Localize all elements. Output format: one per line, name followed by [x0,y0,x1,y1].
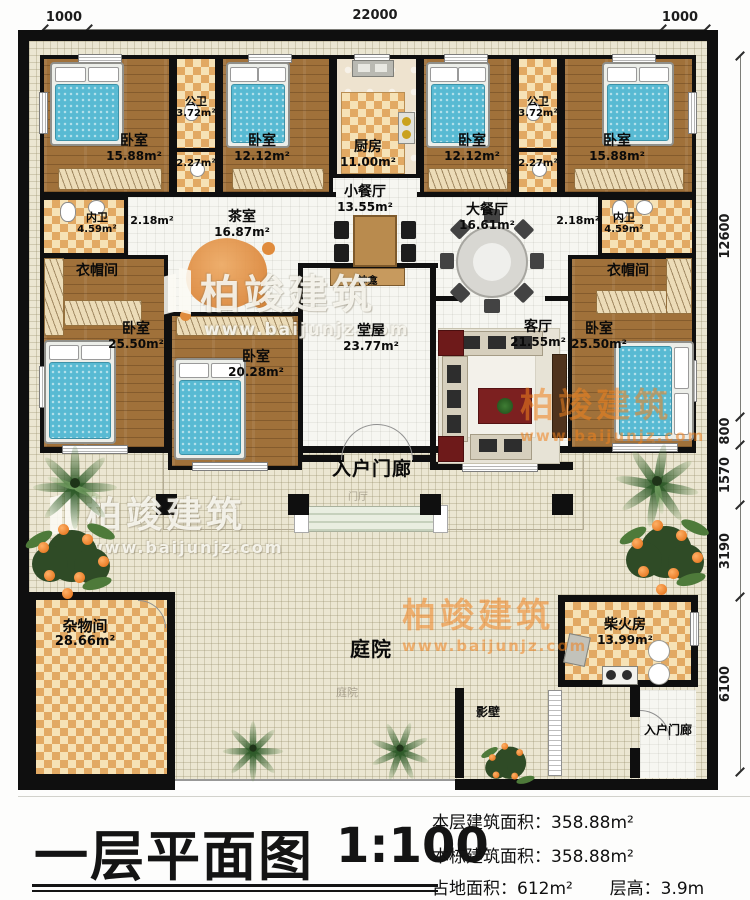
tv-cabinet [552,354,567,438]
chair [440,253,454,269]
table-top [456,226,528,298]
room-label-dining-large: 大餐厅16.61m² [427,203,547,232]
room-label-cloak-right: 衣帽间 [578,264,678,280]
chair [334,244,349,262]
room-label-bath-top-left: 公卫3.72m² [166,96,226,120]
room-label-storage: 杂物间28.66m² [25,618,145,649]
porch-edge [583,453,584,530]
wall-segment [630,687,640,717]
drawing-title: 一层平面图 [34,812,314,891]
porch-column [552,494,573,515]
fruit-tree [480,735,540,792]
wall-segment [40,192,336,197]
tea-room-rug-dot [180,310,191,321]
porch-edge [163,453,164,530]
tea-room-rug-dot [262,242,275,255]
window-icon [462,463,538,472]
chair [401,221,416,239]
side-steps [548,690,562,776]
stat-land-and-height: 占地面积：612m² 层高：3.9m [432,874,704,899]
room-label-hall-left: 2.18m² [122,215,182,227]
chair [530,253,544,269]
porch-column [420,494,441,515]
wall-segment [545,296,571,301]
room-label-wc-right: 内卫4.59m² [584,212,664,236]
dining-table-small [353,215,397,267]
chair [334,221,349,239]
fruit-tree [24,512,120,604]
porch-column [156,494,177,515]
room-label-main-hall: 堂屋23.77m² [311,324,431,353]
title-underline [32,884,438,887]
pot [648,663,670,685]
dim-right-6100: 6100 [719,654,733,714]
window-icon [690,612,699,646]
room-label-dining-small: 小餐厅13.55m² [305,185,425,214]
bed [614,341,694,441]
room-label-bedroom-mid: 卧室20.28m² [196,350,316,379]
dim-right-3190: 3190 [719,521,733,581]
porch-column [288,494,309,515]
screen-wall [455,688,464,778]
dim-top-left: 1000 [38,10,90,25]
firewood-stove [602,666,638,685]
dining-table-round [456,226,528,298]
porch-ghost-text: 门厅 [348,488,368,503]
room-label-bedroom-left3: 卧室25.50m² [76,322,196,351]
palm-tree [221,719,286,784]
dim-right-12600: 12600 [719,206,733,266]
kitchen-sink [352,60,394,77]
room-label-tea-room: 茶室16.87m² [182,210,302,239]
shrine-label: 神龛 [358,276,378,287]
room-label-bedroom-right3: 卧室25.50m² [539,322,659,351]
coffee-table [478,388,532,424]
wardrobe [58,168,162,190]
room-label-cloak-left: 衣帽间 [47,264,147,280]
wall-segment [630,748,640,778]
wardrobe [428,168,508,190]
stat-building-area: 本栋建筑面积：358.88m² [432,842,634,867]
wall-segment [430,263,436,470]
title-underline [32,890,438,892]
chair [401,244,416,262]
wall-segment [417,192,696,197]
dim-top-right: 1000 [654,10,706,25]
room-label-firewood: 柴火房13.99m² [565,618,685,647]
floor-plan-canvas: 1000 22000 1000 12600 800 1570 3190 6100 [0,0,750,900]
room-label-courtyard: 庭院 [311,638,431,660]
room-label-rear-porch: 入户门廊 [638,724,698,737]
separator-line [18,796,750,797]
wardrobe [596,290,668,314]
shrine-altar: 神龛 [330,268,405,286]
stat-floor-area: 本层建筑面积：358.88m² [432,808,634,833]
room-label-bedroom-top-right: 卧室15.88m² [552,134,682,163]
room-label-bath-top-right: 公卫3.72m² [508,96,568,120]
wardrobe [574,168,684,190]
side-table [438,330,464,356]
chair [484,299,500,313]
courtyard-ghost-text: 庭院 [336,684,358,700]
sofa [442,356,468,442]
bed [44,340,116,444]
room-label-porch: 入户门廊 [292,459,452,480]
title-block: 一层平面图 1:100 本层建筑面积：358.88m² 本栋建筑面积：358.8… [0,800,750,900]
palm-tree [368,719,433,784]
dim-top-middle: 22000 [343,8,407,23]
window-icon [688,92,697,134]
window-icon [39,92,48,134]
dim-right-1570: 1570 [719,445,733,505]
fruit-tree [618,508,714,600]
room-label-screen-wall: 影壁 [464,706,512,719]
window-icon [192,462,268,471]
tea-room-rug-dot [252,292,268,308]
armchair [470,434,532,460]
